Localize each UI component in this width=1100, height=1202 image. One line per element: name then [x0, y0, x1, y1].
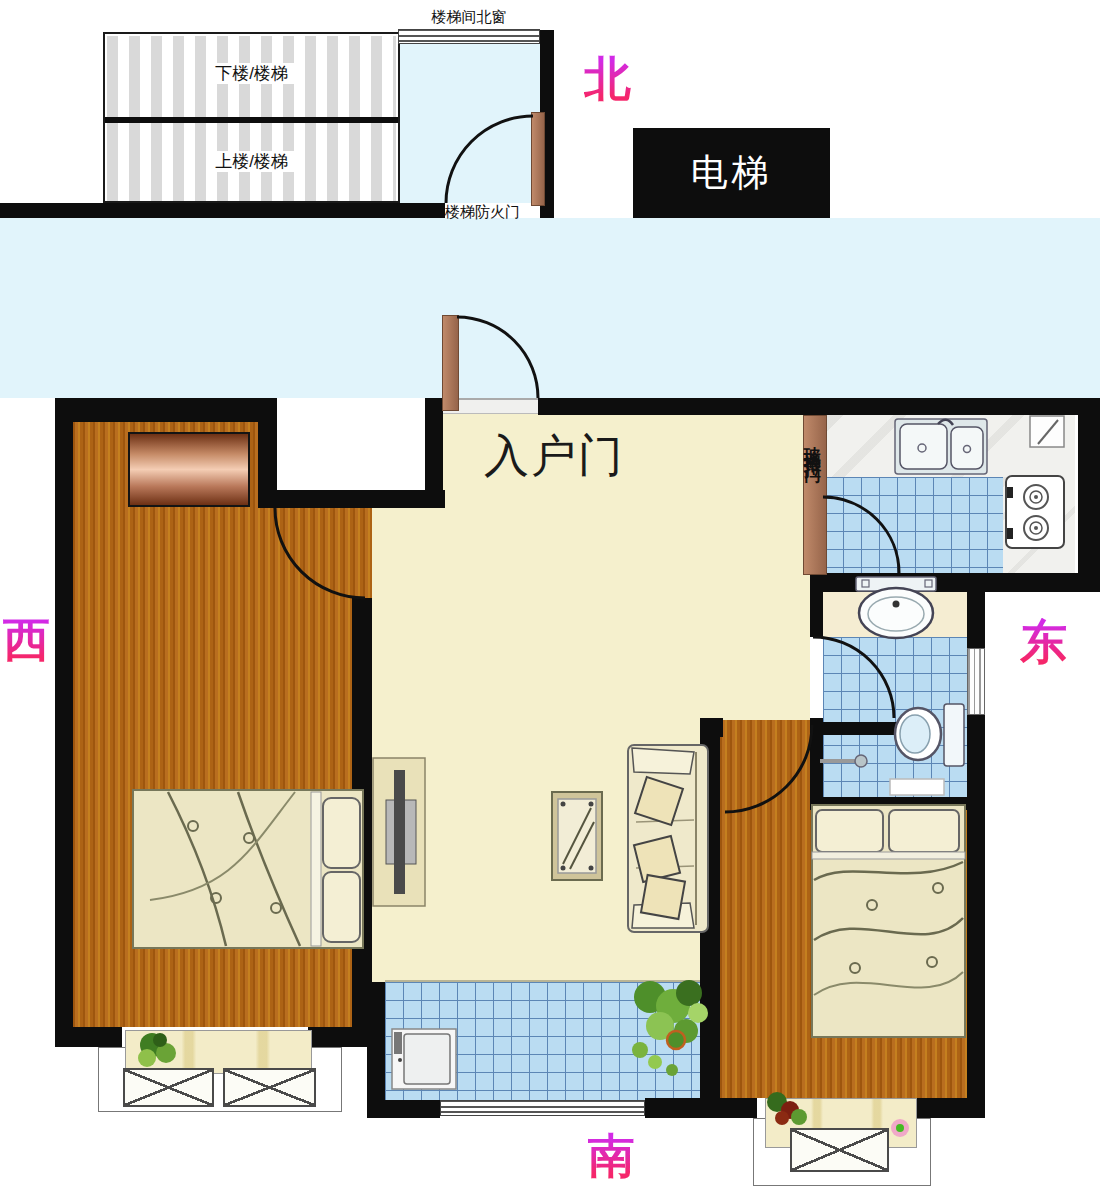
elevator: 电梯	[633, 128, 830, 218]
kitchen-floor	[825, 477, 1003, 573]
entry-door-label: 入户门	[484, 426, 625, 486]
balcony-edge-line	[385, 980, 703, 982]
stairwell-floor	[398, 30, 540, 203]
wall-segment	[645, 1098, 703, 1118]
wall-segment	[967, 715, 985, 800]
wall-segment	[0, 203, 445, 218]
bathroom-floor	[823, 637, 967, 797]
wall-segment	[308, 1027, 367, 1047]
wall-segment	[967, 800, 985, 1118]
wardrobe	[128, 432, 250, 507]
wall-segment	[810, 573, 1100, 592]
balcony-south-window	[440, 1100, 645, 1116]
sliding-door-label: 玻璃推拉门	[804, 432, 821, 457]
bedroom-west-floor	[73, 422, 372, 1027]
wall-segment	[55, 398, 277, 422]
wall-segment	[538, 398, 1100, 415]
corridor-floor	[0, 218, 1100, 398]
entry-door-leaf	[442, 315, 459, 411]
wall-segment	[367, 1100, 440, 1118]
wall-segment	[352, 598, 372, 1030]
kitchen-counter-top	[825, 415, 1075, 477]
wall-segment	[967, 592, 985, 648]
wall-segment	[818, 722, 903, 735]
wall-segment	[810, 573, 823, 637]
wall-segment	[55, 398, 73, 1047]
floor-plan: 下楼/楼梯 上楼/楼梯 电梯	[0, 0, 1100, 1202]
living-room-floor-west	[372, 508, 447, 982]
compass-north: 北	[584, 55, 631, 102]
compass-west: 西	[3, 616, 50, 663]
wall-segment	[258, 490, 445, 508]
stairs-down-label: 下楼/楼梯	[209, 63, 294, 84]
fire-door-leaf	[531, 112, 545, 206]
staircase: 下楼/楼梯 上楼/楼梯	[103, 32, 400, 203]
stairwell-window-label: 楼梯间北窗	[398, 8, 540, 27]
casement-window	[123, 1068, 214, 1107]
bathroom-east-window	[967, 648, 985, 715]
stairs-up-label: 上楼/楼梯	[209, 151, 294, 172]
kitchen-counter-east	[1003, 477, 1075, 573]
exterior-notch	[277, 398, 425, 490]
elevator-label: 电梯	[691, 148, 773, 198]
compass-east: 东	[1020, 618, 1067, 665]
wall-segment	[917, 1098, 985, 1118]
casement-window	[790, 1128, 889, 1172]
wall-segment	[55, 1027, 122, 1047]
wall-segment	[1078, 415, 1100, 592]
fire-door-label: 楼梯防火门	[445, 203, 520, 222]
wall-segment	[700, 722, 720, 1118]
wall-segment	[700, 1098, 757, 1118]
wall-segment	[425, 398, 443, 508]
wall-segment	[810, 797, 967, 810]
wall-segment	[367, 982, 385, 1118]
stairwell-north-window	[398, 29, 540, 44]
balcony-floor	[385, 982, 703, 1100]
compass-south: 南	[588, 1132, 635, 1179]
casement-window	[223, 1068, 316, 1107]
